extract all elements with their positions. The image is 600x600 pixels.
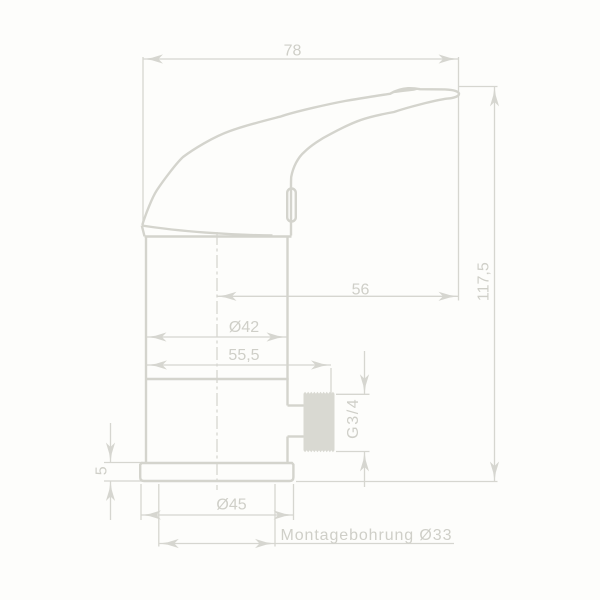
svg-text:78: 78 xyxy=(284,43,302,60)
svg-text:Ø45: Ø45 xyxy=(216,497,246,514)
svg-text:5: 5 xyxy=(94,466,111,475)
svg-text:Montagebohrung Ø33: Montagebohrung Ø33 xyxy=(281,527,453,544)
svg-text:G3/4: G3/4 xyxy=(345,398,362,439)
svg-text:55,5: 55,5 xyxy=(228,347,259,364)
svg-text:56: 56 xyxy=(352,282,370,299)
svg-text:Ø42: Ø42 xyxy=(229,319,259,336)
svg-text:117,5: 117,5 xyxy=(476,262,493,301)
